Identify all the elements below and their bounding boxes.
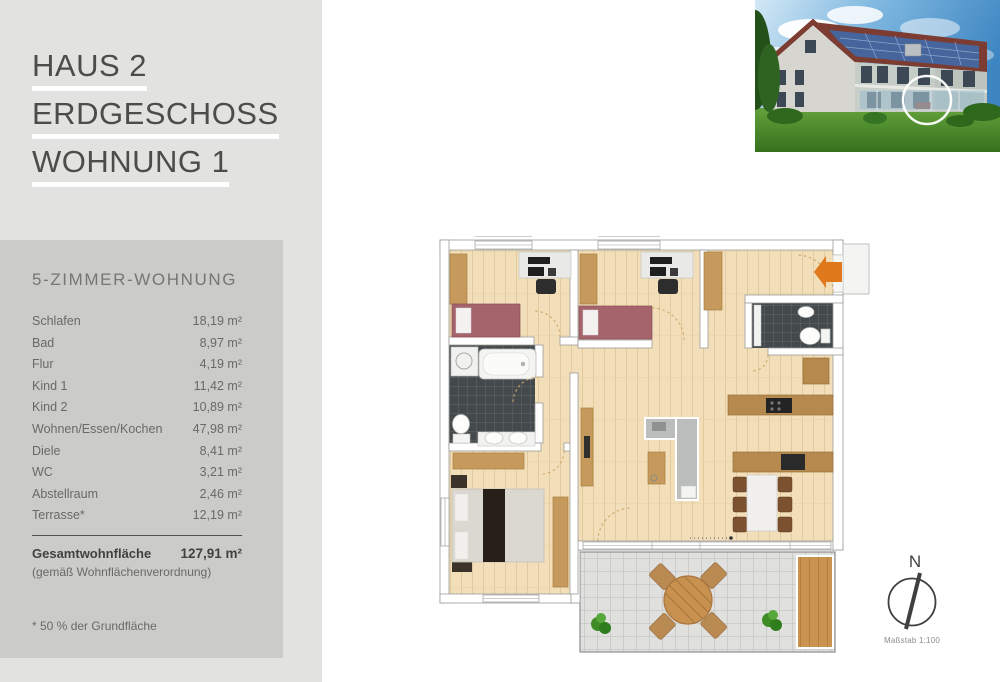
hall-wardrobe [704,252,722,310]
table-row: Kind 111,42 m² [32,376,242,398]
room-area-table: Schlafen18,19 m² Bad8,97 m² Flur4,19 m² … [32,311,242,527]
sidebar-background: HAUS 2 ERDGESCHOSS WOHNUNG 1 5-ZIMMER-WO… [0,0,322,682]
floor-plan [430,230,875,660]
footnote: * 50 % der Grundfläche [32,619,283,633]
total-label: Gesamtwohnfläche [32,546,151,561]
table-row: WC3,21 m² [32,462,242,484]
table-row: Diele8,41 m² [32,441,242,463]
table-row: Bad8,97 m² [32,333,242,355]
apartment-type-heading: 5-ZIMMER-WOHNUNG [32,270,283,290]
table-row: Wohnen/Essen/Kochen47,98 m² [32,419,242,441]
room-area: 11,42 m² [194,376,242,398]
room-area: 3,21 m² [200,462,242,484]
room-label: Schlafen [32,311,81,333]
room-label: Kind 1 [32,376,67,398]
compass: N [878,545,946,638]
table-divider [32,535,242,536]
table-row: Flur4,19 m² [32,354,242,376]
room-label: Kind 2 [32,397,67,419]
room-area: 47,98 m² [193,419,242,441]
north-compass-icon: N [878,545,946,633]
title-line-haus: HAUS 2 [32,50,147,91]
table-row: Kind 210,89 m² [32,397,242,419]
building-photo-graphic [755,0,1000,152]
room-label: WC [32,462,53,484]
table-row: Terrasse*12,19 m² [32,505,242,527]
apartment-info-panel: 5-ZIMMER-WOHNUNG Schlafen18,19 m² Bad8,9… [0,240,283,658]
building-photo [755,0,1000,152]
room-area: 2,46 m² [200,484,242,506]
room-area: 10,89 m² [193,397,242,419]
total-note: (gemäß Wohnflächenverordnung) [32,565,283,579]
entry-landing [843,244,869,294]
terrace-deck [797,556,833,648]
room-area: 4,19 m² [200,354,242,376]
table-row: Abstellraum2,46 m² [32,484,242,506]
room-area: 18,19 m² [193,311,242,333]
room-area: 8,41 m² [200,441,242,463]
room-label: Bad [32,333,54,355]
room-label: Abstellraum [32,484,98,506]
balcony-glass [859,90,985,110]
title-line-geschoss: ERDGESCHOSS [32,98,279,139]
room-label: Flur [32,354,54,376]
sideboard [581,408,593,486]
title-line-wohnung: WOHNUNG 1 [32,146,229,187]
page-title: HAUS 2 ERDGESCHOSS WOHNUNG 1 [32,50,279,194]
scale-label: Maßstab 1:100 [872,636,952,645]
dormer [905,44,921,56]
total-row: Gesamtwohnfläche 127,91 m² [32,546,242,561]
room-label: Terrasse* [32,505,85,527]
room-label: Diele [32,441,61,463]
dining-set [733,475,792,532]
room-area: 8,97 m² [200,333,242,355]
compass-n-label: N [909,552,921,571]
room-area: 12,19 m² [193,505,242,527]
total-area-value: 127,91 m² [180,546,242,561]
room-label: Wohnen/Essen/Kochen [32,419,162,441]
table-row: Schlafen18,19 m² [32,311,242,333]
